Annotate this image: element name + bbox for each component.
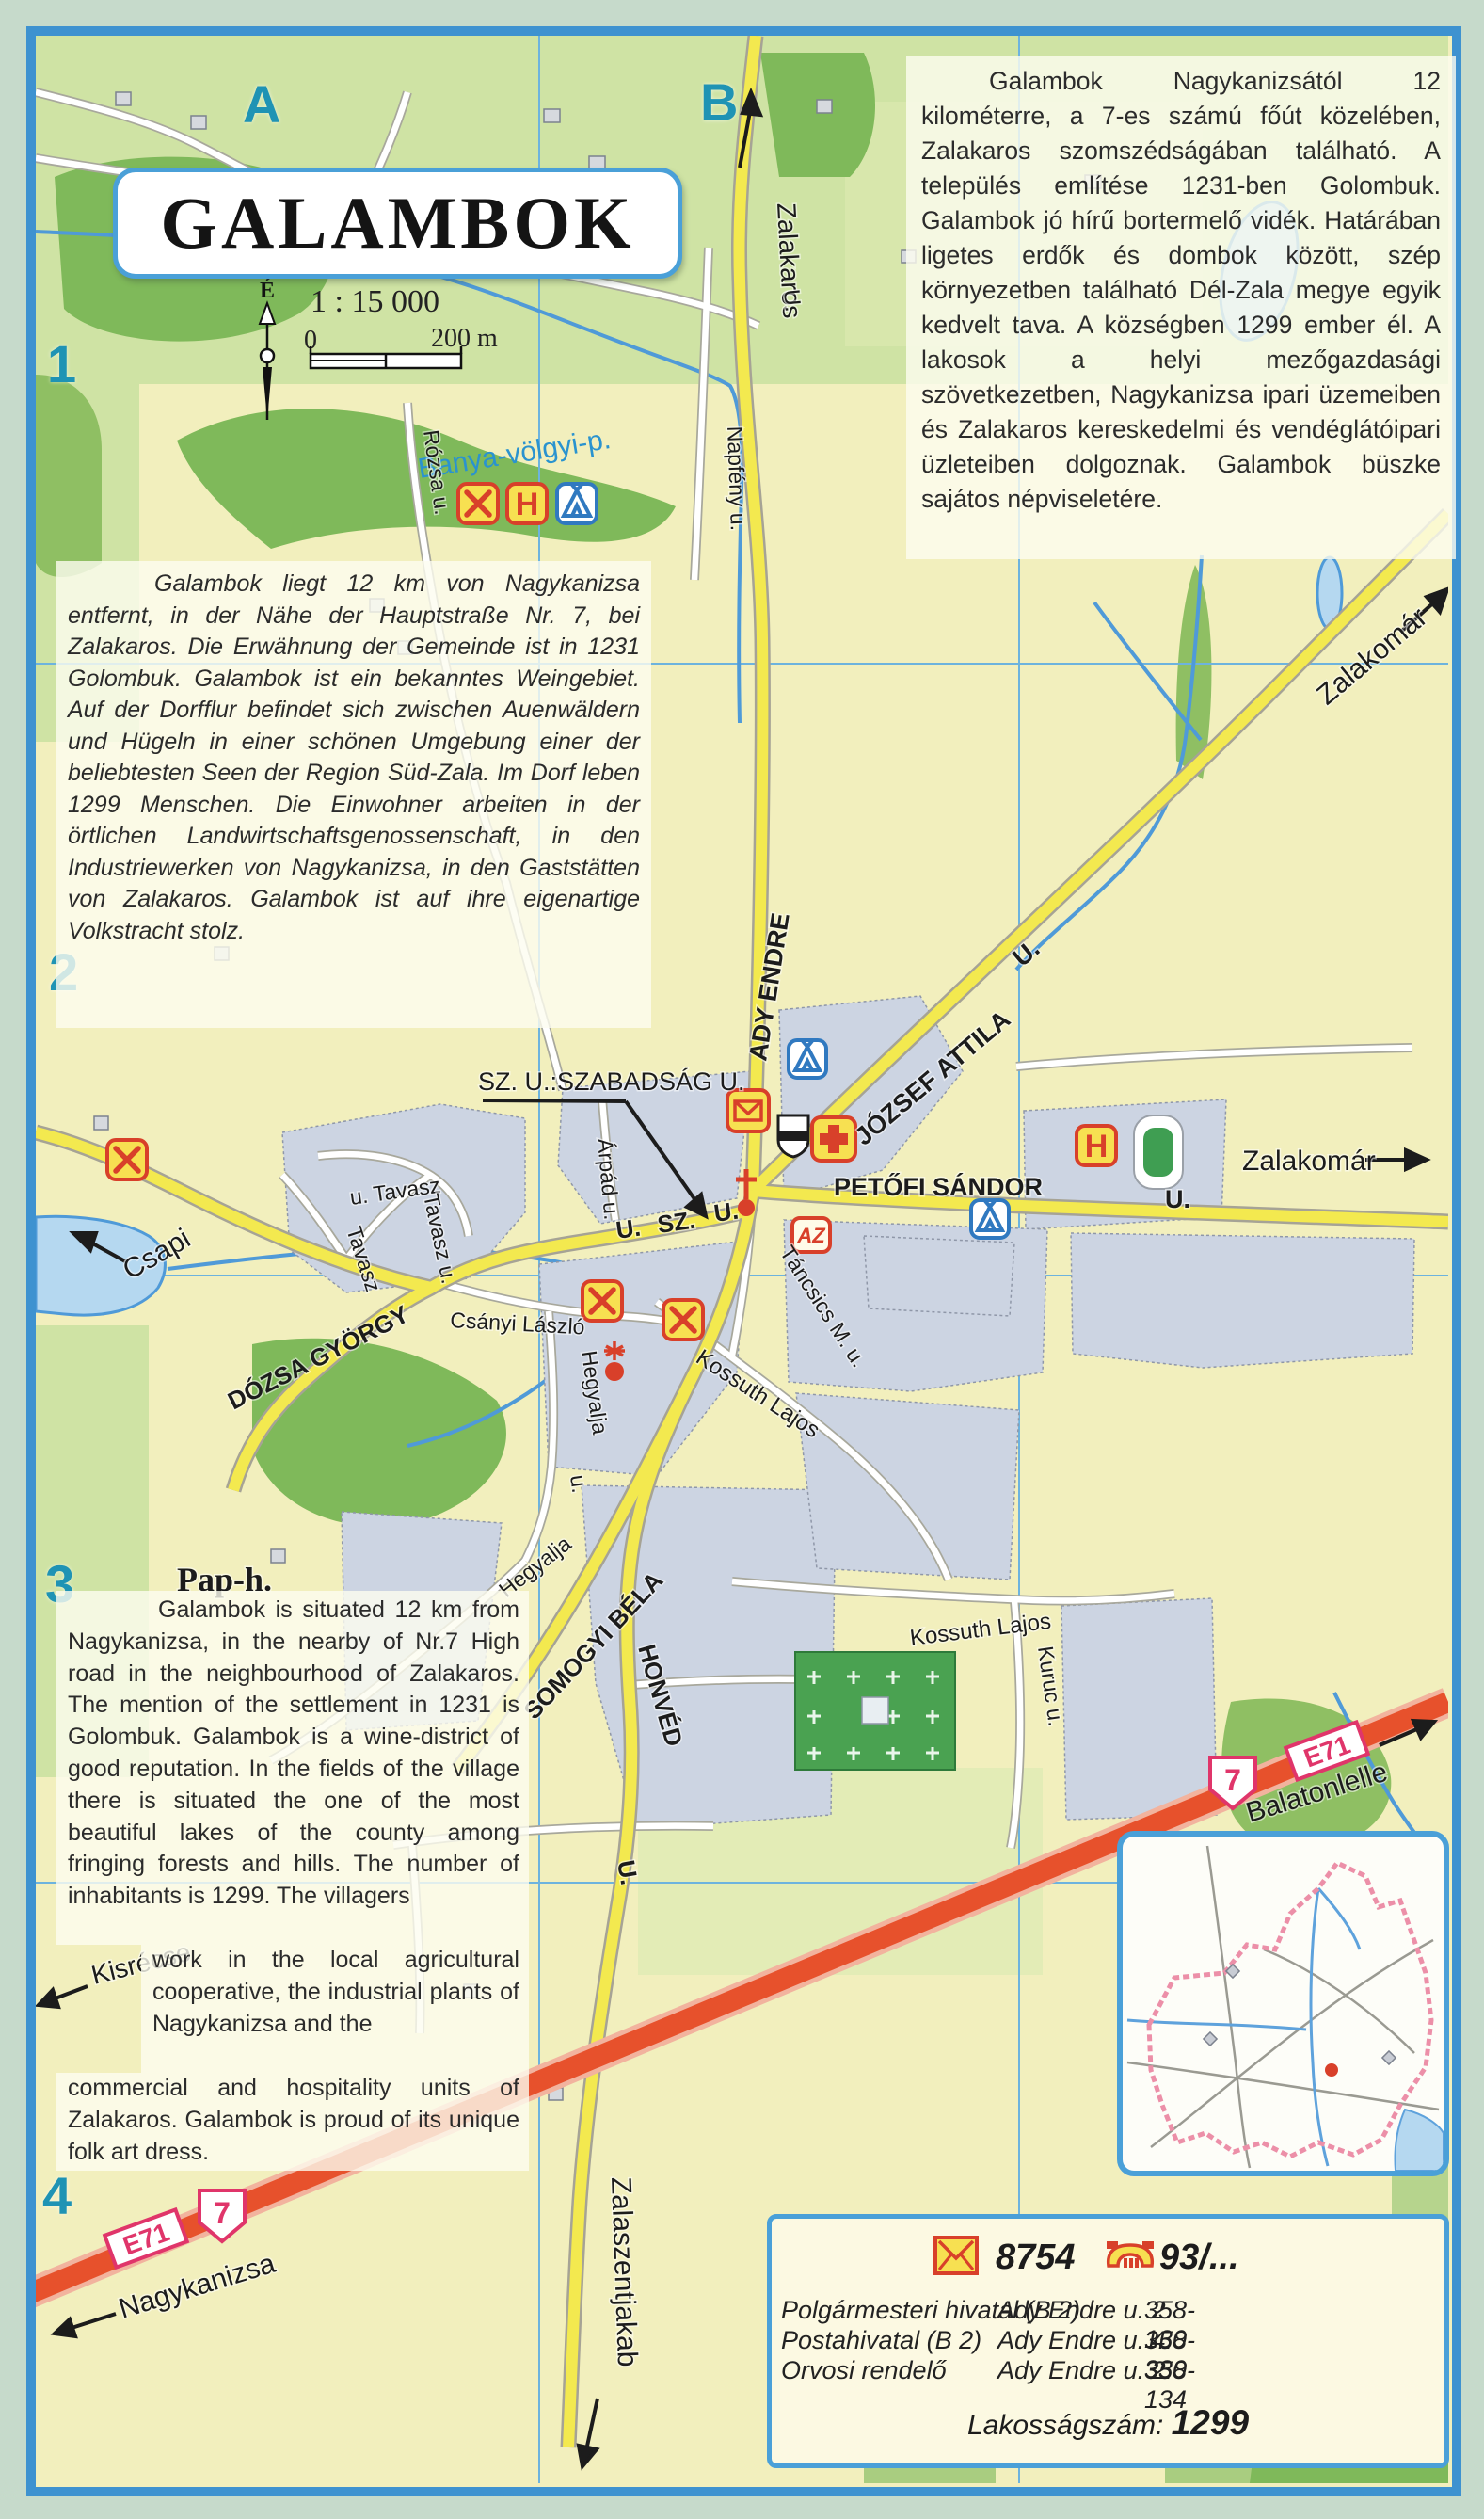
sports-field bbox=[1134, 1115, 1183, 1189]
camping-icon bbox=[789, 1040, 826, 1078]
phone-icon bbox=[1103, 2234, 1157, 2277]
place-label-zalaszentjakab: Zalaszentjakab bbox=[605, 2176, 643, 2367]
street-label-sz-u-c: U. bbox=[712, 1196, 741, 1227]
svg-text:200 m: 200 m bbox=[431, 324, 498, 353]
description-english-part2: work in the local agricultural cooperati… bbox=[141, 1945, 529, 2073]
svg-text:AZ: AZ bbox=[796, 1224, 826, 1247]
grid-column-b: B bbox=[700, 72, 738, 133]
facility-name: Orvosi rendelő bbox=[781, 2356, 947, 2385]
svg-text:H: H bbox=[516, 487, 539, 522]
svg-text:7: 7 bbox=[1224, 1763, 1241, 1797]
street-label-u-top: U. bbox=[778, 288, 806, 313]
population-value: 1299 bbox=[1172, 2403, 1249, 2442]
population-line: Lakosságszám: 1299 bbox=[772, 2403, 1444, 2443]
coat-of-arms-icon bbox=[778, 1115, 808, 1157]
street-label-sz-u-b: SZ. bbox=[656, 1206, 697, 1239]
note-label-szabadsag: SZ. U.:SZABADSÁG U. bbox=[478, 1067, 745, 1096]
street-label-hegyalja-1u: u. bbox=[566, 1473, 592, 1495]
svg-text:H: H bbox=[1085, 1129, 1109, 1164]
post-office-icon bbox=[727, 1090, 769, 1131]
camping-icon bbox=[557, 484, 597, 523]
restaurant-icon bbox=[663, 1300, 703, 1340]
svg-text:7: 7 bbox=[214, 2196, 231, 2230]
inset-overview-map bbox=[1117, 1831, 1449, 2176]
info-row: Postahivatal (B 2) Ady Endre u. 4. 358-3… bbox=[772, 2326, 1444, 2356]
description-german: Galambok liegt 12 km von Nagykanizsa ent… bbox=[56, 561, 651, 1028]
street-label-honved-u: U. bbox=[612, 1858, 644, 1887]
inset-lake bbox=[1395, 2110, 1444, 2171]
contact-info-box: 8754 93/... Polgármesteri hivatal (B 2) … bbox=[767, 2214, 1449, 2468]
inset-roads bbox=[1127, 1846, 1439, 2168]
grid-column-a: A bbox=[243, 73, 280, 135]
street-label-petofi: PETŐFI SÁNDOR bbox=[834, 1172, 1043, 1201]
street-label-petofi-u: U. bbox=[1165, 1185, 1190, 1213]
description-hungarian: Galambok Nagykanizsától 12 kilométerre, … bbox=[906, 56, 1456, 559]
map-title-box: GALAMBOK bbox=[113, 168, 682, 279]
cemetery bbox=[795, 1652, 955, 1770]
info-row: Orvosi rendelő Ady Endre u. 2. 358-134 bbox=[772, 2356, 1444, 2386]
map-scale-ratio: 1 : 15 000 bbox=[311, 284, 439, 320]
place-label-zalakomar-e: Zalakomár bbox=[1242, 1146, 1376, 1177]
street-label-napfeny: Napfény u. bbox=[723, 425, 751, 531]
inset-galambok-dot bbox=[1325, 2063, 1338, 2077]
forest-topright bbox=[760, 53, 875, 177]
hotel-icon: H bbox=[1077, 1126, 1116, 1165]
grid-row-4: 4 bbox=[42, 2165, 72, 2226]
camping-icon bbox=[971, 1200, 1009, 1238]
hotel-icon: H bbox=[507, 484, 547, 523]
pharmacy-cross-icon bbox=[812, 1117, 855, 1161]
grid-row-1: 1 bbox=[47, 333, 76, 394]
phone-prefix: 93/... bbox=[1159, 2238, 1239, 2278]
info-row: Polgármesteri hivatal (B 2) Ady Endre u.… bbox=[772, 2296, 1444, 2326]
restaurant-icon bbox=[582, 1281, 622, 1321]
postal-envelope-icon bbox=[932, 2234, 981, 2277]
svg-text:É: É bbox=[260, 279, 275, 303]
inset-map-canvas bbox=[1123, 1837, 1444, 2171]
population-label: Lakosságszám: bbox=[967, 2410, 1163, 2441]
restaurant-icon bbox=[107, 1140, 147, 1179]
restaurant-icon bbox=[458, 484, 498, 523]
description-english-part3: commercial and hospitality units of Zala… bbox=[56, 2073, 529, 2171]
map-title: GALAMBOK bbox=[160, 181, 634, 265]
facility-name: Postahivatal (B 2) bbox=[781, 2326, 981, 2355]
inset-boundary bbox=[1149, 1863, 1431, 2157]
description-english-part1: Galambok is situated 12 km from Nagykani… bbox=[56, 1591, 529, 1945]
postal-code: 8754 bbox=[996, 2238, 1076, 2278]
